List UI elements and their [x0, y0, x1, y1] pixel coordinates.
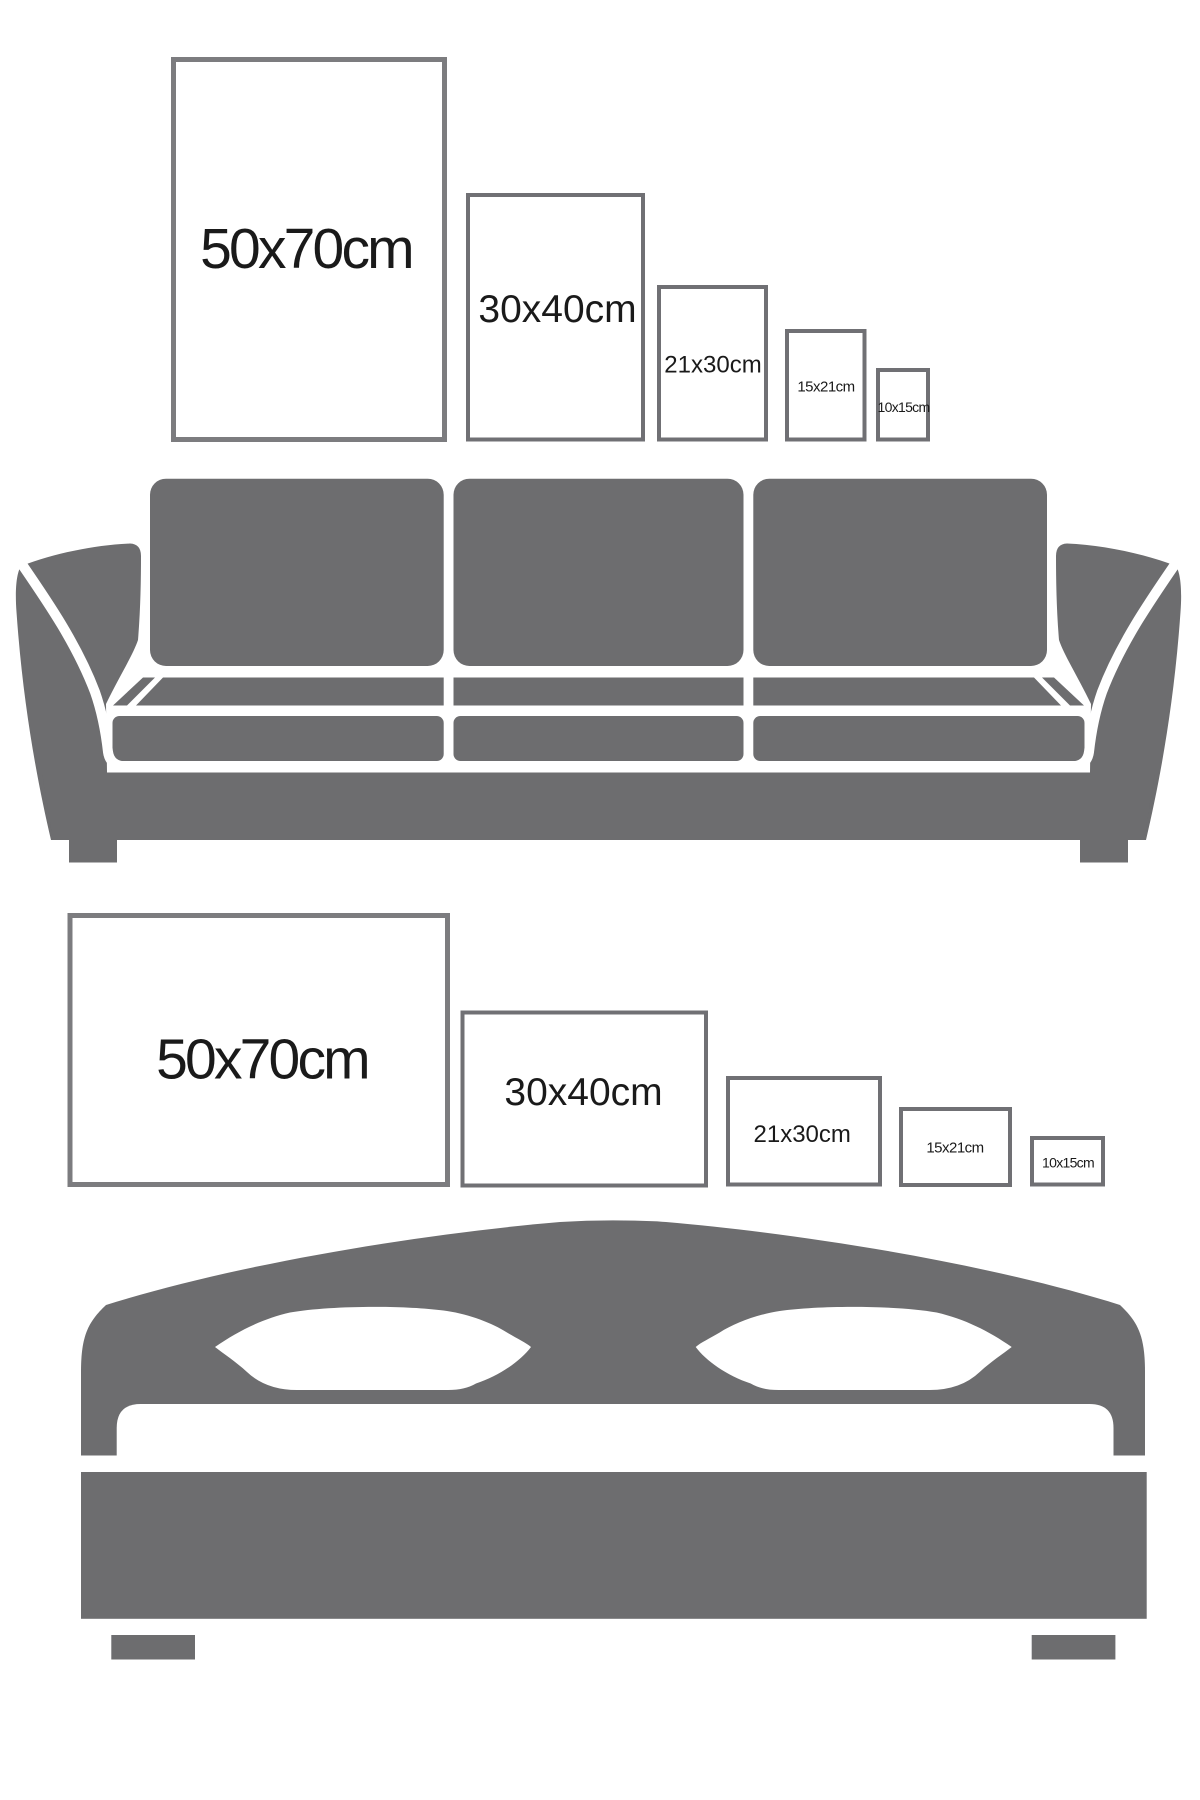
svg-text:15x21cm: 15x21cm [797, 378, 854, 395]
svg-text:50x70cm: 50x70cm [156, 1028, 368, 1092]
svg-text:21x30cm: 21x30cm [664, 352, 761, 379]
svg-text:15x21cm: 15x21cm [926, 1139, 983, 1156]
svg-text:30x40cm: 30x40cm [504, 1071, 662, 1114]
svg-text:21x30cm: 21x30cm [754, 1121, 851, 1148]
svg-text:10x15cm: 10x15cm [878, 399, 930, 415]
svg-text:30x40cm: 30x40cm [478, 288, 636, 331]
svg-text:10x15cm: 10x15cm [1042, 1154, 1094, 1170]
svg-text:50x70cm: 50x70cm [200, 217, 412, 281]
